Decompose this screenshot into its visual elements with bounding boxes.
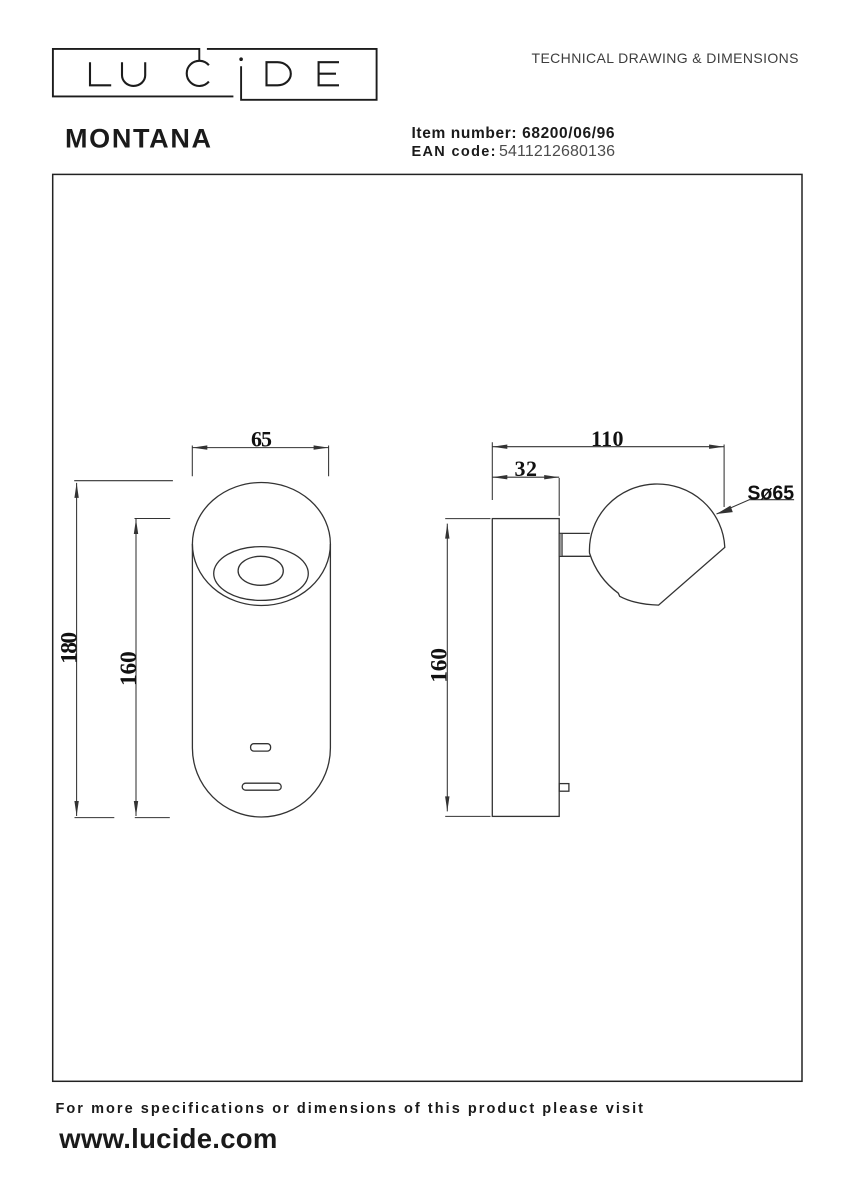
svg-text:For more specifications or dim: For more specifications or dimensions of… (56, 1101, 644, 1117)
svg-text:160: 160 (427, 648, 453, 683)
svg-text:110: 110 (591, 426, 624, 451)
svg-text:www.lucide.com: www.lucide.com (58, 1123, 277, 1154)
svg-text:160: 160 (116, 651, 142, 686)
svg-text:Item number: 68200/06/96: Item number: 68200/06/96 (412, 125, 615, 142)
svg-text:EAN code:: EAN code: (412, 144, 496, 160)
svg-text:Sø65: Sø65 (747, 482, 794, 505)
svg-text:TECHNICAL DRAWING & DIMENSIONS: TECHNICAL DRAWING & DIMENSIONS (532, 50, 799, 66)
svg-text:MONTANA: MONTANA (65, 124, 211, 154)
svg-text:65: 65 (251, 426, 272, 451)
svg-text:32: 32 (515, 456, 538, 481)
svg-text:180: 180 (56, 632, 82, 664)
svg-text:5411212680136: 5411212680136 (499, 143, 615, 160)
